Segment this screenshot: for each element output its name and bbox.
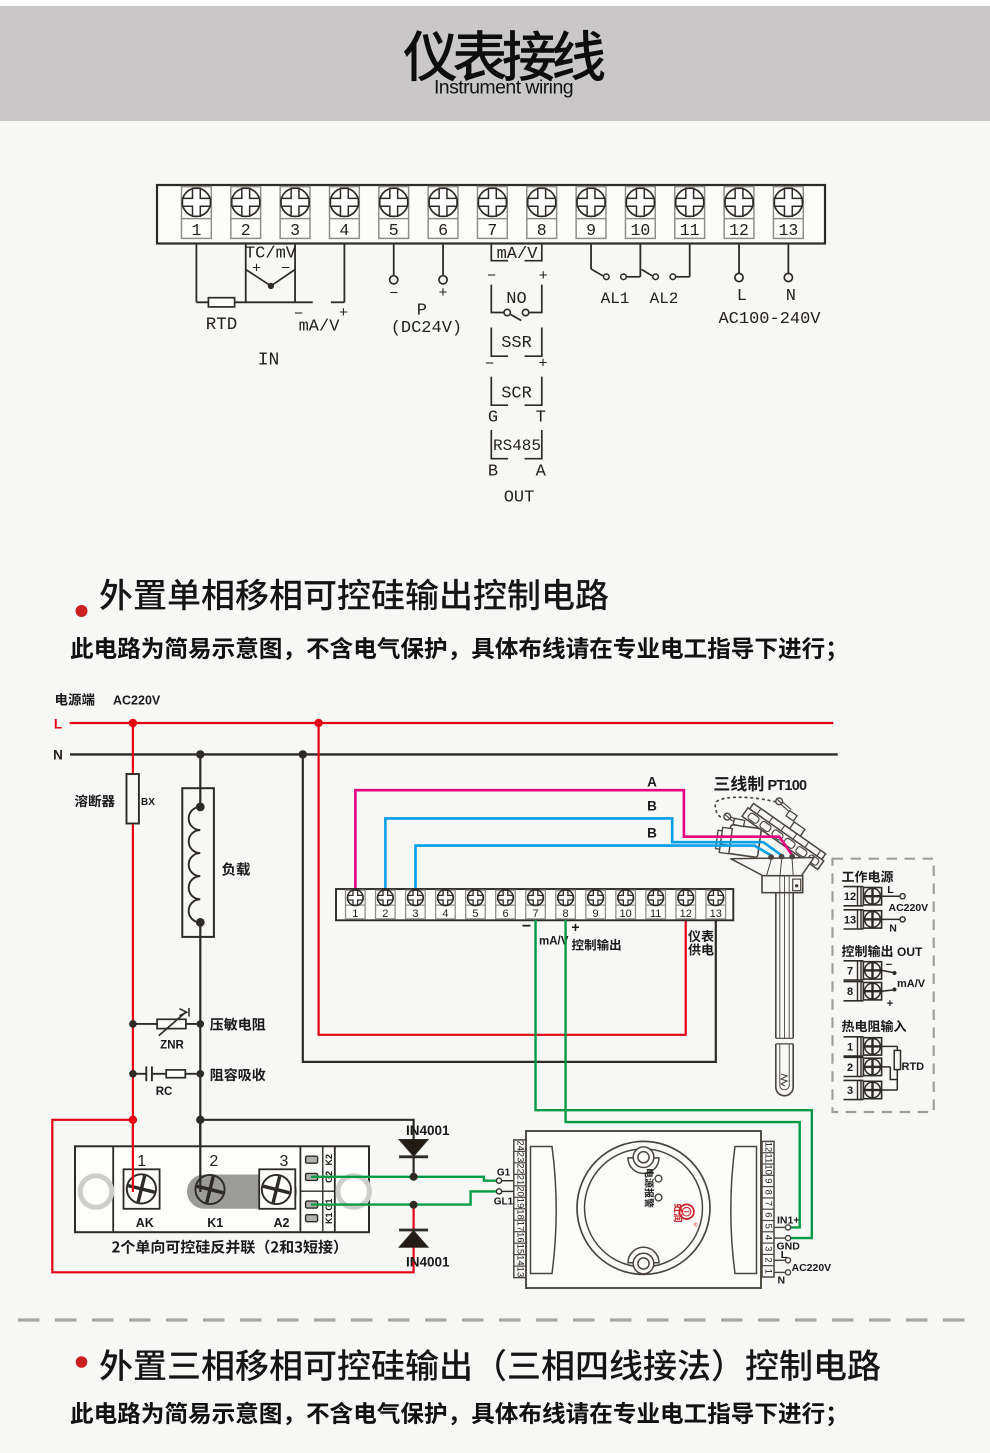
svg-text:19: 19: [514, 1198, 525, 1209]
svg-text:4: 4: [763, 1235, 774, 1240]
svg-text:5: 5: [472, 908, 478, 920]
svg-text:+: +: [339, 305, 348, 322]
svg-text:mA/V: mA/V: [299, 318, 341, 337]
svg-text:11: 11: [763, 1153, 774, 1163]
svg-text:10: 10: [763, 1164, 774, 1175]
svg-text:2: 2: [241, 221, 251, 240]
svg-text:A2: A2: [274, 1216, 290, 1230]
svg-text:AL1: AL1: [601, 290, 630, 308]
svg-text:mA/V: mA/V: [497, 245, 539, 264]
svg-text:2: 2: [763, 1257, 774, 1262]
svg-text:8: 8: [537, 221, 547, 240]
svg-text:3: 3: [279, 1153, 288, 1170]
svg-text:NO: NO: [506, 290, 526, 309]
svg-text:8: 8: [563, 908, 569, 920]
svg-text:P: P: [417, 302, 427, 321]
svg-text:3: 3: [290, 221, 300, 240]
svg-text:24: 24: [514, 1140, 525, 1151]
svg-text:2: 2: [847, 1062, 853, 1074]
svg-text:10: 10: [620, 908, 632, 920]
svg-text:+: +: [539, 268, 548, 285]
svg-text:K1: K1: [324, 1212, 334, 1224]
svg-text:5: 5: [389, 221, 399, 240]
svg-text:−: −: [487, 268, 496, 285]
svg-text:−: −: [886, 959, 892, 971]
svg-text:1: 1: [191, 221, 201, 240]
svg-text:G: G: [488, 409, 498, 428]
svg-text:SCR: SCR: [501, 385, 532, 404]
svg-text:13: 13: [778, 221, 798, 240]
svg-text:22: 22: [514, 1163, 525, 1174]
svg-text:IN1+: IN1+: [777, 1215, 799, 1227]
svg-text:RTD: RTD: [206, 315, 238, 335]
svg-text:AL2: AL2: [650, 290, 679, 308]
svg-text:7: 7: [763, 1201, 774, 1206]
svg-text:AC100-240V: AC100-240V: [718, 310, 821, 329]
svg-text:6: 6: [763, 1212, 774, 1217]
svg-text:AC220V: AC220V: [113, 694, 161, 708]
svg-text:AC220V: AC220V: [889, 902, 929, 914]
svg-text:T: T: [536, 409, 546, 428]
svg-text:16: 16: [514, 1232, 525, 1243]
svg-text:OUT: OUT: [897, 945, 923, 959]
svg-text:A: A: [536, 463, 547, 482]
svg-text:−: −: [389, 286, 398, 303]
svg-text:+: +: [887, 998, 893, 1010]
svg-text:23: 23: [514, 1152, 525, 1163]
svg-text:8: 8: [847, 986, 853, 998]
svg-text:mA/V: mA/V: [897, 978, 926, 990]
svg-text:10: 10: [630, 221, 650, 240]
svg-text:G1: G1: [497, 1168, 511, 1179]
svg-text:Instrument wiring: Instrument wiring: [434, 76, 573, 98]
svg-text:−: −: [522, 918, 531, 935]
svg-text:K2: K2: [324, 1154, 334, 1166]
svg-text:18: 18: [514, 1209, 525, 1220]
svg-text:N: N: [889, 923, 897, 935]
svg-text:3: 3: [412, 908, 418, 920]
svg-text:IN4001: IN4001: [406, 1123, 450, 1138]
svg-text:7: 7: [487, 221, 497, 240]
svg-text:A: A: [647, 775, 657, 790]
svg-text:13: 13: [514, 1267, 525, 1278]
svg-text:SSR: SSR: [501, 334, 532, 353]
svg-text:7: 7: [847, 965, 853, 977]
svg-text:IN4001: IN4001: [406, 1255, 450, 1270]
svg-text:+: +: [538, 356, 547, 373]
svg-text:RTD: RTD: [902, 1061, 925, 1073]
svg-text:11: 11: [680, 221, 700, 240]
svg-text:9: 9: [763, 1178, 774, 1183]
svg-text:RS485: RS485: [493, 437, 541, 455]
svg-text:17: 17: [514, 1221, 525, 1232]
svg-text:14: 14: [514, 1255, 525, 1266]
svg-text:L: L: [781, 1249, 788, 1261]
svg-text:(DC24V): (DC24V): [391, 319, 462, 338]
svg-text:AC220V: AC220V: [792, 1262, 832, 1274]
svg-text:L: L: [737, 287, 747, 306]
svg-text:B: B: [488, 463, 498, 482]
svg-text:13: 13: [710, 908, 722, 920]
svg-text:AK: AK: [136, 1216, 154, 1230]
svg-text:IN: IN: [258, 351, 280, 371]
svg-text:B: B: [647, 799, 657, 814]
svg-text:1: 1: [763, 1269, 774, 1274]
svg-text:6: 6: [502, 908, 508, 920]
svg-text:N: N: [778, 1275, 786, 1287]
svg-text:11: 11: [650, 908, 661, 920]
svg-text:12: 12: [763, 1142, 774, 1153]
svg-text:3: 3: [847, 1085, 853, 1097]
svg-text:mA/V: mA/V: [539, 936, 569, 948]
svg-text:9: 9: [593, 908, 599, 920]
svg-text:3: 3: [763, 1246, 774, 1251]
svg-text:−: −: [485, 356, 494, 373]
svg-text:12: 12: [844, 891, 856, 903]
svg-text:1: 1: [847, 1041, 853, 1053]
svg-text:1: 1: [352, 908, 358, 920]
svg-text:5: 5: [763, 1224, 774, 1229]
svg-text:1: 1: [137, 1153, 146, 1170]
svg-text:2: 2: [209, 1153, 218, 1170]
svg-text:8: 8: [763, 1190, 774, 1195]
svg-text:7: 7: [532, 908, 538, 920]
svg-text:BX: BX: [141, 797, 155, 808]
svg-text:GL1: GL1: [494, 1197, 514, 1208]
svg-text:L: L: [54, 717, 62, 732]
svg-text:21: 21: [514, 1175, 525, 1186]
svg-text:20: 20: [514, 1186, 525, 1197]
svg-text:B: B: [647, 826, 657, 841]
svg-text:13: 13: [844, 914, 856, 926]
svg-text:N: N: [786, 287, 796, 306]
svg-text:L: L: [887, 884, 894, 896]
svg-text:®: ®: [694, 1222, 698, 1229]
svg-text:−: −: [281, 261, 290, 278]
svg-text:+: +: [571, 919, 579, 935]
svg-text:6: 6: [438, 221, 448, 240]
svg-text:9: 9: [586, 221, 596, 240]
svg-text:ZNR: ZNR: [160, 1040, 184, 1052]
svg-text:PT100: PT100: [768, 778, 807, 794]
svg-text:+: +: [439, 285, 448, 302]
svg-text:RC: RC: [156, 1086, 173, 1098]
svg-text:2: 2: [382, 908, 388, 920]
svg-text:N: N: [53, 748, 63, 763]
svg-text:12: 12: [680, 908, 692, 920]
svg-text:OUT: OUT: [504, 489, 535, 508]
svg-text:4: 4: [442, 908, 448, 920]
svg-text:4: 4: [339, 221, 349, 240]
svg-text:15: 15: [514, 1244, 525, 1255]
svg-text:12: 12: [729, 221, 749, 240]
svg-text:K1: K1: [207, 1216, 223, 1230]
